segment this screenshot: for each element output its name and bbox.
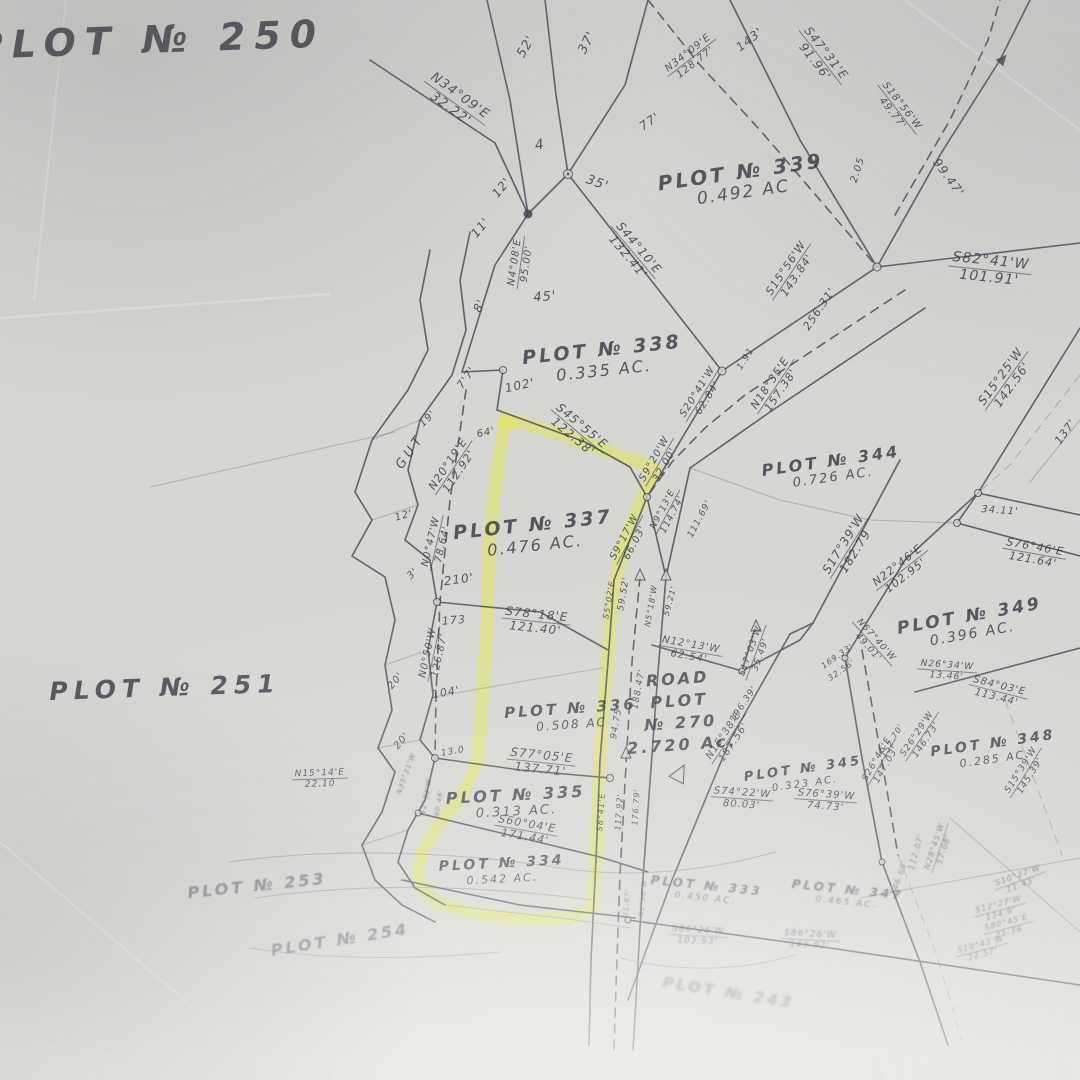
bearing-label: N22°46'E102.95' (868, 541, 936, 602)
bearing-label: S76°39'W74.73' (794, 787, 859, 815)
bearing-label: S9°20'W32.00' (636, 432, 684, 492)
tick-label: 20' (392, 730, 412, 751)
map-photo: PLOT № 250 PLOT № 3390.492 AC PLOT № 338… (0, 0, 1080, 1080)
bearing-label: S47°31'E91.96' (788, 22, 852, 94)
tick-label: 7'7' (455, 365, 479, 392)
tick-label: 34.11' (981, 504, 1019, 518)
tick-label: 173 (442, 614, 467, 628)
tick-label: 256.31' (801, 285, 838, 332)
plot-label-347: PLOT № 3470.465 AC. (790, 878, 904, 914)
tick-label: 104' (431, 685, 461, 702)
survey-map-photo: { "colors": {"paper":"#d6d6d2","ink":"#4… (0, 0, 1080, 1080)
tick-label: 210' (443, 571, 475, 589)
bearing-label: S17°39'W182.79 (819, 510, 881, 587)
tick-label: 77' (637, 110, 662, 133)
tick-label: 19' (418, 409, 439, 430)
plot-label-251: PLOT № 251 (49, 670, 281, 706)
bearing-label: N26°34'W13.46' (917, 658, 978, 683)
tick-label: 99.47' (930, 156, 967, 199)
bearing-label: S10°43'W22.57' (954, 934, 1011, 966)
tick-label: 102' (504, 376, 536, 395)
bearing-label: N18°35'E157.38' (747, 353, 805, 422)
tick-label: 12' (394, 508, 415, 524)
plot-label-339: PLOT № 3390.492 AC (656, 149, 827, 214)
tick-label: 40.46' (434, 789, 447, 818)
bearing-label: S74°22'W80.03' (710, 785, 775, 813)
bearing-label: N34°09'E32.22' (416, 69, 494, 137)
tick-label: 111.69' (686, 499, 714, 540)
bearing-label: S18°56'W49.77' (868, 78, 925, 142)
plot-label-344: PLOT № 3440.726 AC. (761, 443, 904, 496)
bearing-label: N28°45'W57.08' (923, 819, 958, 877)
tick-label: S5°02'E (602, 580, 618, 620)
tick-label: 13.0 (440, 745, 465, 759)
bearing-label: S44°10'E132.41' (600, 218, 666, 289)
tick-label: N2°32'W (420, 778, 434, 817)
tick-label: 64' (476, 426, 496, 441)
tick-label: 137' (1053, 417, 1079, 447)
tick-label: 2.05 (849, 156, 868, 184)
bearing-label: S78°18'E121.40' (500, 605, 572, 640)
bearing-label: N15°14'E22.10 (291, 767, 348, 790)
tick-label: 35' (584, 173, 611, 195)
tick-label: 143' (734, 25, 766, 54)
tick-label: 117.92' (614, 793, 626, 831)
bearing-label: S60°04'E171.44' (492, 813, 560, 849)
bearing-label: S76°46'E121.64' (1000, 536, 1068, 572)
bearing-label: S26°46'E147.03' (859, 733, 905, 791)
tick-label: N35°21'W (396, 752, 418, 795)
plot-label-334: PLOT № 3340.542 AC. (438, 853, 565, 889)
bearing-label: S45°55'E122.38' (542, 399, 613, 465)
plot-label-337: PLOT № 3370.476 AC. (452, 507, 616, 564)
bearing-label: S86°26'W103.93' (668, 924, 728, 948)
bearing-label: N34°09'E128.77' (661, 30, 723, 86)
tick-label: 12' (490, 175, 514, 200)
plot-label-253: PLOT № 253 (187, 870, 328, 902)
plot-label-250: PLOT № 250 (0, 13, 326, 68)
gut-label: GUT (394, 432, 429, 473)
bearing-label: N0°47'W78.64' (419, 512, 455, 573)
bearing-label: N4°08'E95.00' (506, 235, 537, 291)
tick-label: 1.91 (735, 346, 756, 372)
tick-label: 37' (576, 29, 600, 56)
tick-label: 3' (405, 566, 421, 582)
bearing-label: S84°03'E113.44' (966, 673, 1030, 710)
bearing-label: N9°13'E114.74' (647, 485, 689, 539)
tick-label: 11' (469, 215, 493, 240)
tick-label: S1°36'W (638, 879, 649, 917)
plot-label-338: PLOT № 3380.335 AC. (521, 332, 685, 389)
plot-label-349: PLOT № 3490.396 AC. (896, 595, 1046, 656)
tick-label: N5°18'W (644, 584, 660, 627)
tick-label: 8' (471, 297, 489, 314)
bearing-label: N0°50'W126.87' (417, 624, 452, 685)
plot-label-333: PLOT № 3330.450 AC. (649, 874, 763, 910)
tick-label: 52' (515, 33, 539, 60)
tick-label: 59.21' (663, 585, 680, 617)
tick-label: 176.79' (631, 788, 643, 826)
bearing-label: N20°19'E112.92' (425, 434, 483, 503)
tick-label: 20' (386, 670, 406, 691)
bearing-label: S15°25'W142.56' (974, 343, 1040, 419)
tick-label: S8°41'E (596, 792, 608, 831)
bearing-label: S86°26'W143.92' (780, 928, 840, 952)
plot-label-243: PLOT № 243 (661, 974, 795, 1011)
bearing-label: N12°13'W62.54' (656, 634, 724, 668)
bearing-label: S17°03'W35.49' (736, 622, 776, 684)
tick-label: 45' (533, 290, 557, 306)
bearing-label: S77°05'E137.71' (505, 746, 577, 781)
tick-label: 4 (534, 137, 546, 154)
bearing-label: S20°41'W62.84' (676, 362, 729, 428)
tick-label: 31.67' (623, 889, 633, 918)
bearing-label: S15°56'W143.84' (762, 236, 821, 307)
plot-label-254: PLOT № 254 (270, 920, 411, 960)
map-labels: PLOT № 250 PLOT № 3390.492 AC PLOT № 338… (0, 0, 1080, 1080)
tick-label: 59.52' (616, 576, 632, 611)
bearing-label: S82°41'W101.91' (947, 250, 1033, 291)
